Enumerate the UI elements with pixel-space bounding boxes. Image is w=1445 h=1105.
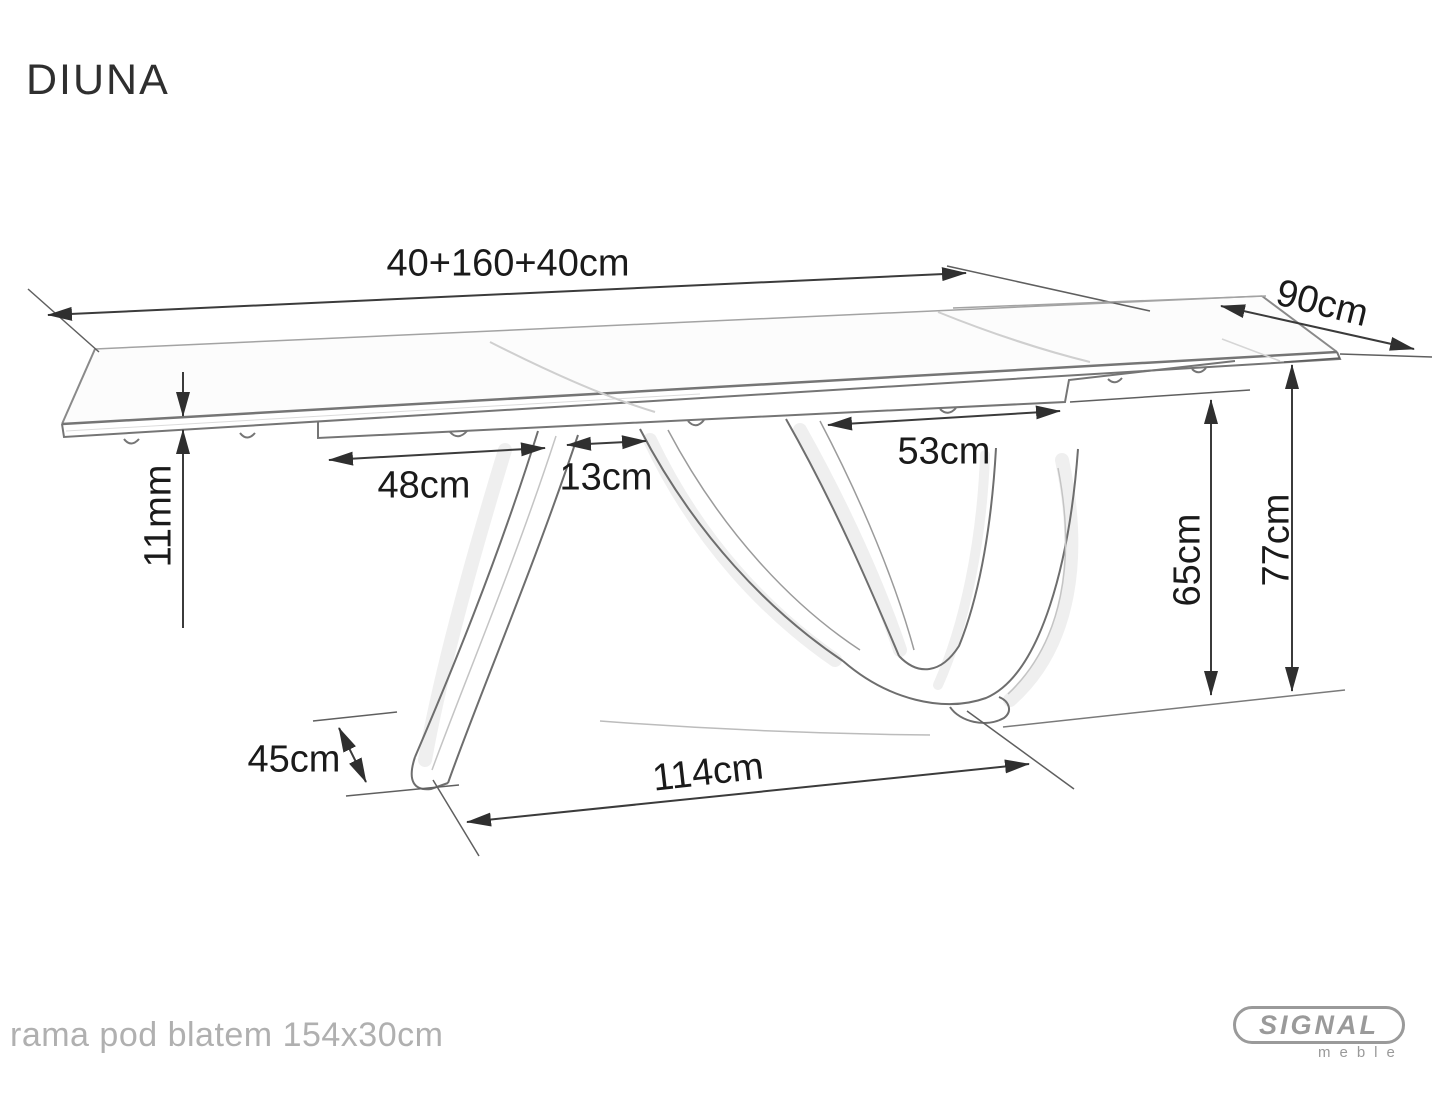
underframe-note: rama pod blatem 154x30cm: [10, 1016, 443, 1055]
technical-drawing-page: DIUNA 40+160+40cm 90cm 11mm 48cm 13cm 53…: [0, 0, 1445, 1105]
signal-logo-subtext: meble: [1318, 1044, 1404, 1061]
dim-line-right-span: [828, 411, 1060, 425]
dim-left-span-label: 48cm: [378, 465, 471, 508]
dim-thickness-label: 11mm: [138, 465, 181, 568]
base: [412, 419, 1078, 789]
dim-center-gap-label: 13cm: [560, 457, 653, 500]
dim-line-left-span: [329, 448, 545, 460]
dim-line-foot-depth: [339, 728, 366, 782]
table-technical-drawing: [0, 0, 1445, 1105]
page-title: DIUNA: [26, 56, 170, 105]
signal-logo: SIGNAL: [1233, 1006, 1405, 1044]
dim-right-span-label: 53cm: [898, 431, 991, 474]
dim-total-height-label: 77cm: [1256, 494, 1299, 587]
dim-foot-depth-label: 45cm: [248, 739, 341, 782]
dim-length-label: 40+160+40cm: [387, 243, 630, 286]
signal-logo-text: SIGNAL: [1259, 1012, 1379, 1039]
dim-underframe-height-label: 65cm: [1167, 514, 1210, 607]
floor-shadow: [600, 721, 930, 735]
dim-line-center-gap: [567, 441, 646, 445]
tabletop: [62, 296, 1340, 444]
